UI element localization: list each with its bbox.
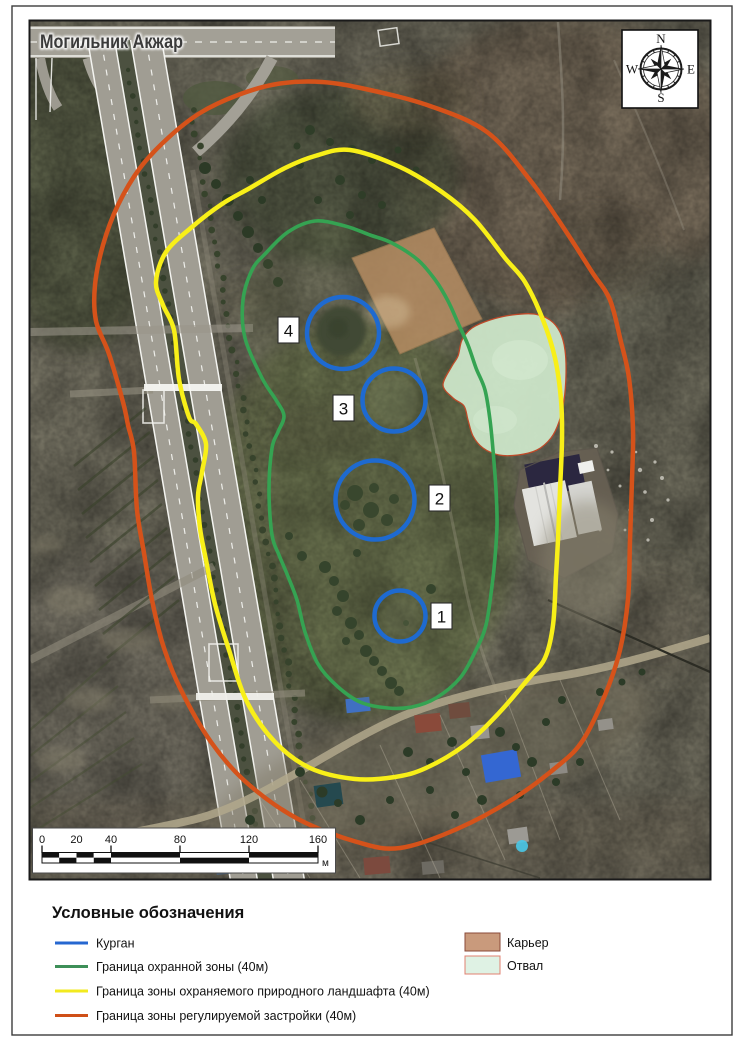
svg-text:3: 3 <box>339 400 348 419</box>
svg-text:Граница зоны регулируемой заст: Граница зоны регулируемой застройки (40м… <box>96 1009 356 1023</box>
svg-text:160: 160 <box>309 834 327 846</box>
svg-text:Карьер: Карьер <box>507 936 549 950</box>
svg-text:N: N <box>656 31 666 46</box>
svg-text:2: 2 <box>435 490 444 509</box>
svg-text:Условные обозначения: Условные обозначения <box>52 904 244 922</box>
svg-text:Могильник Акжар: Могильник Акжар <box>40 32 183 53</box>
svg-text:120: 120 <box>240 834 258 846</box>
svg-text:W: W <box>626 62 639 77</box>
svg-text:80: 80 <box>174 834 186 846</box>
svg-text:1: 1 <box>437 608 446 627</box>
svg-text:4: 4 <box>284 322 293 341</box>
svg-text:S: S <box>657 90 664 105</box>
svg-text:м: м <box>322 858 329 869</box>
svg-text:Курган: Курган <box>96 937 135 951</box>
svg-text:20: 20 <box>70 834 82 846</box>
svg-text:Граница охранной зоны (40м): Граница охранной зоны (40м) <box>96 960 268 974</box>
svg-text:Граница зоны охраняемого приро: Граница зоны охраняемого природного ланд… <box>96 985 430 999</box>
svg-text:E: E <box>687 62 695 77</box>
svg-text:Отвал: Отвал <box>507 959 543 973</box>
svg-text:0: 0 <box>39 834 45 846</box>
svg-text:40: 40 <box>105 834 117 846</box>
